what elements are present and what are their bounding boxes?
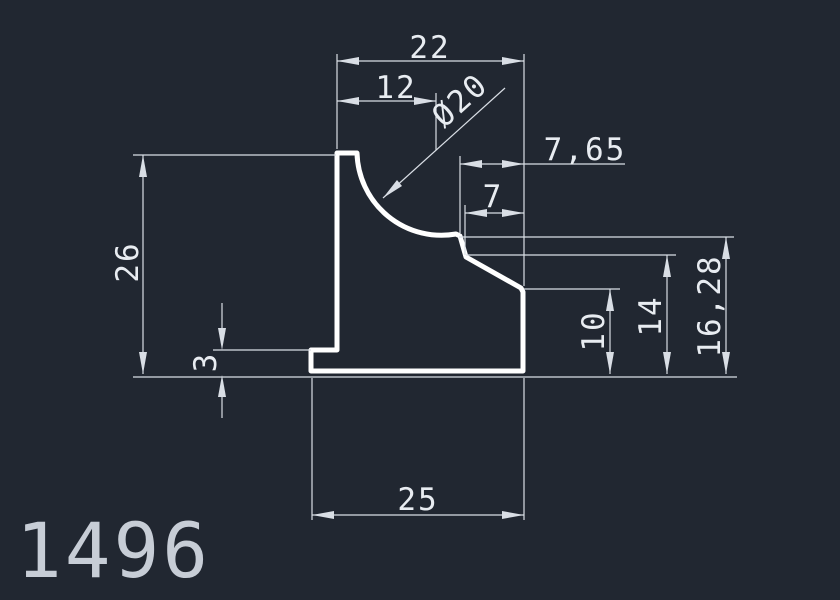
dim-bottom-width: 25 <box>312 482 524 519</box>
dimension-value: 25 <box>397 482 438 518</box>
technical-drawing: 22 12 Ø20 7,65 7 26 3 <box>0 0 840 600</box>
dim-height-1628: 16,28 <box>692 237 730 374</box>
arrowhead <box>312 511 334 519</box>
dimension-value: 3 <box>188 352 224 373</box>
dim-offset-7: 7 <box>465 179 524 217</box>
arrowhead <box>218 375 226 397</box>
arrowhead <box>218 328 226 350</box>
dimension-value: 26 <box>110 241 146 282</box>
dim-partial-width: 12 <box>337 70 436 106</box>
arrowhead <box>606 289 614 311</box>
arrowhead <box>337 97 359 105</box>
dim-height-26: 26 <box>110 155 147 374</box>
dim-offset-765: 7,65 <box>460 132 626 168</box>
dim-top-width: 22 <box>337 30 524 66</box>
arrowhead <box>337 57 359 65</box>
arrowhead <box>139 352 147 374</box>
dimension-value: 22 <box>409 30 450 66</box>
arrowhead <box>663 255 671 277</box>
extension-lines <box>133 54 737 520</box>
arrowhead <box>383 180 402 198</box>
arrowhead <box>139 155 147 177</box>
dimension-value: 7,65 <box>544 132 627 168</box>
dimension-value: 16,28 <box>692 254 728 357</box>
arrowhead <box>502 57 524 65</box>
dim-height-14: 14 <box>633 255 671 374</box>
arrowhead <box>502 160 524 168</box>
arrowhead <box>502 511 524 519</box>
arrowhead <box>502 209 524 217</box>
dim-height-10: 10 <box>576 289 614 374</box>
dimension-value: 14 <box>633 295 669 336</box>
arrowhead <box>663 352 671 374</box>
arrowhead <box>606 352 614 374</box>
cad-viewport: 22 12 Ø20 7,65 7 26 3 <box>0 0 840 600</box>
part-number: 1496 <box>16 506 211 595</box>
dimension-value: 12 <box>375 70 416 106</box>
dim-lip-height-3: 3 <box>188 303 226 418</box>
dimension-value: 7 <box>483 179 504 215</box>
dimension-value: 10 <box>576 310 612 351</box>
arrowhead <box>460 160 482 168</box>
